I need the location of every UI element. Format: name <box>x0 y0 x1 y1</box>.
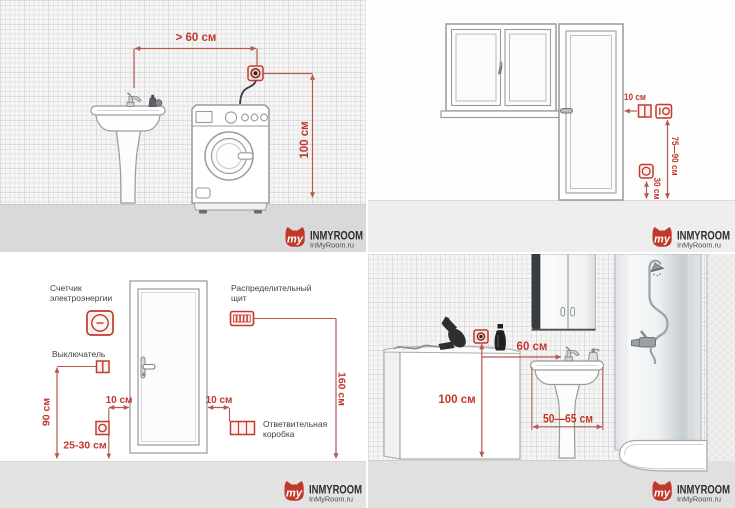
svg-text:30 см: 30 см <box>651 178 662 200</box>
svg-text:10 см: 10 см <box>624 92 646 103</box>
svg-text:InMyRoom.ru: InMyRoom.ru <box>310 241 354 250</box>
svg-text:160 см: 160 см <box>336 372 348 406</box>
svg-text:электроэнергии: электроэнергии <box>50 293 112 303</box>
svg-text:60 см: 60 см <box>517 341 548 353</box>
svg-text:my: my <box>286 487 303 499</box>
svg-text:100 см: 100 см <box>299 121 311 158</box>
svg-text:50—65 см: 50—65 см <box>543 414 593 426</box>
svg-text:Ответвительная: Ответвительная <box>263 419 328 429</box>
svg-text:my: my <box>287 233 304 245</box>
svg-text:10 см: 10 см <box>206 395 233 406</box>
svg-text:InMyRoom.ru: InMyRoom.ru <box>677 241 721 250</box>
svg-text:Распределительный: Распределительный <box>231 283 312 293</box>
svg-text:90 см: 90 см <box>41 398 53 426</box>
svg-text:InMyRoom.ru: InMyRoom.ru <box>677 495 721 504</box>
svg-text:коробка: коробка <box>263 429 295 439</box>
svg-text:Выключатель: Выключатель <box>52 349 106 359</box>
svg-text:100 см: 100 см <box>438 394 475 406</box>
svg-text:my: my <box>654 233 671 245</box>
svg-text:InMyRoom.ru: InMyRoom.ru <box>309 495 353 504</box>
svg-text:my: my <box>654 487 671 499</box>
svg-text:щит: щит <box>231 293 247 303</box>
svg-text:75—90 см: 75—90 см <box>669 137 680 176</box>
svg-text:Счетчик: Счетчик <box>50 283 82 293</box>
svg-text:10 см: 10 см <box>106 395 133 406</box>
svg-text:25-30 см: 25-30 см <box>63 440 107 452</box>
svg-text:> 60 см: > 60 см <box>176 32 217 44</box>
